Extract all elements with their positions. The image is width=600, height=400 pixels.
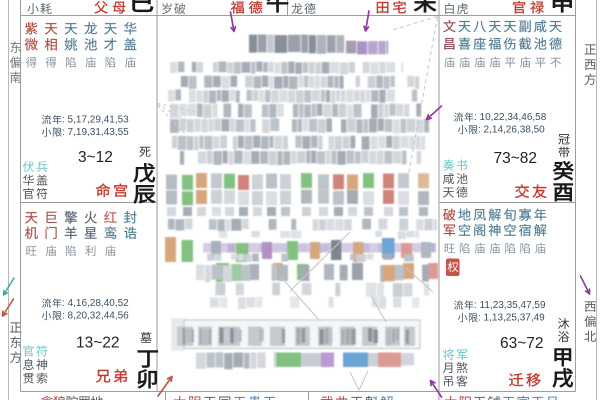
svg-text:: 11,23,35,47,59: : 11,23,35,47,59 [474,300,546,311]
svg-text:: 5,17,29,41,53: : 5,17,29,41,53 [62,115,129,126]
svg-text:3~12: 3~12 [78,149,113,166]
svg-text:: 2,14,26,38,50: : 2,14,26,38,50 [478,125,545,136]
svg-text:: 1,13,25,37,49: : 1,13,25,37,49 [478,313,545,324]
svg-text:73~82: 73~82 [494,150,538,167]
svg-text:: 7,19,31,43,55: : 7,19,31,43,55 [62,127,129,138]
svg-text:: 4,16,28,40,52: : 4,16,28,40,52 [62,298,129,309]
svg-text:13~22: 13~22 [76,335,120,352]
svg-text:: 10,22,34,46,58: : 10,22,34,46,58 [474,112,547,123]
svg-text:63~72: 63~72 [500,335,544,352]
svg-text:: 8,20,32,44,56: : 8,20,32,44,56 [62,311,129,322]
